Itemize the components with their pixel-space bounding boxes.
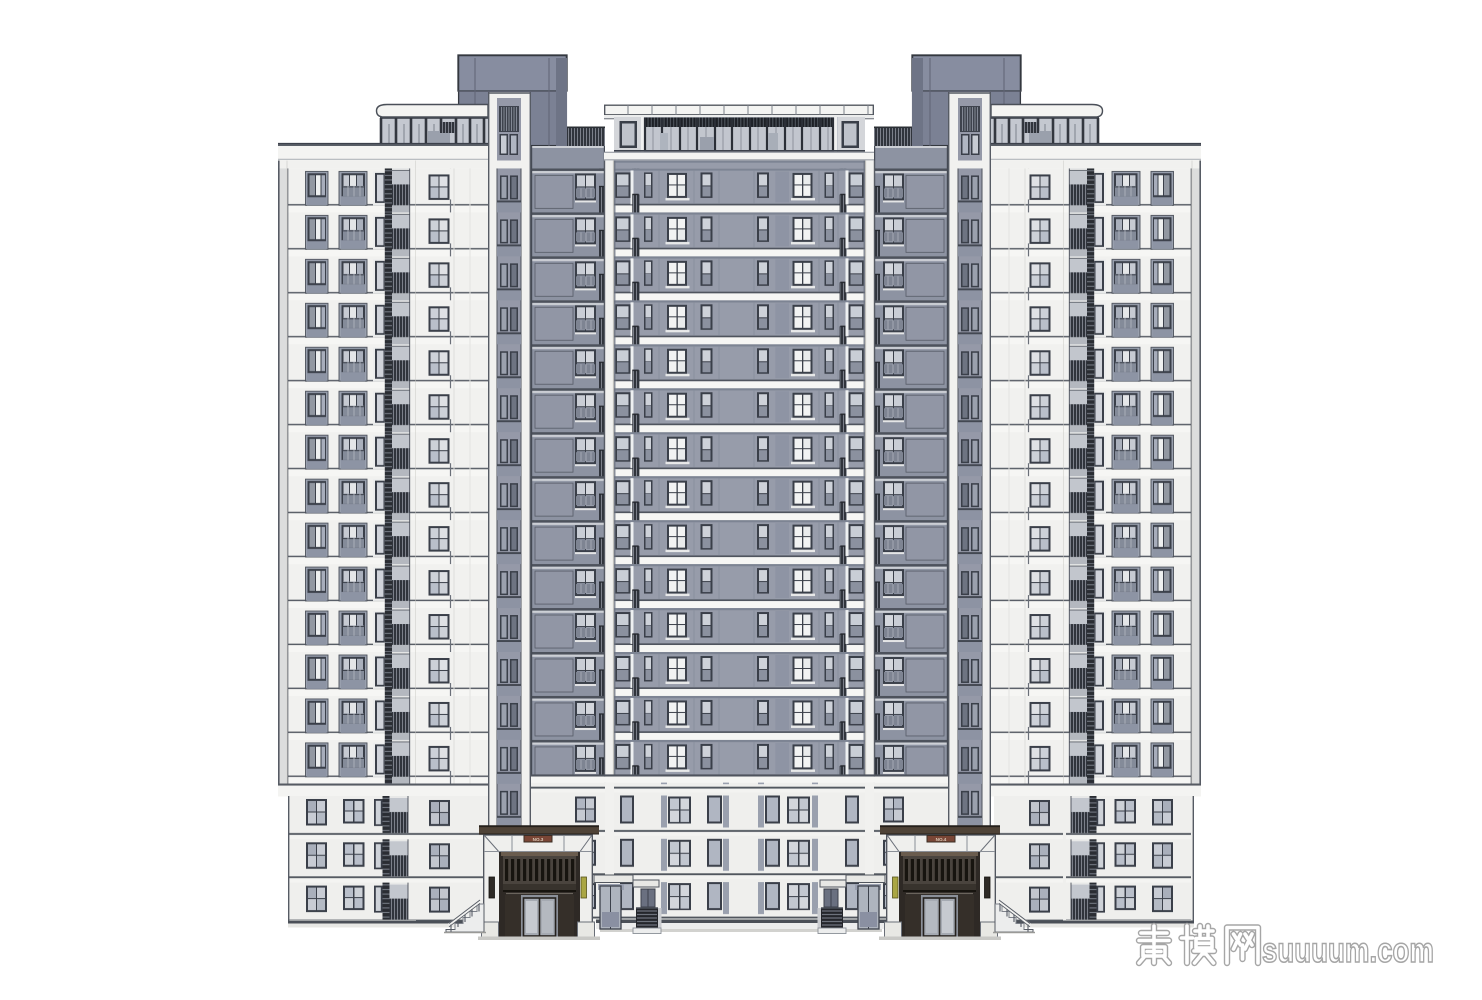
- svg-text:suuuum.com: suuuum.com: [1262, 931, 1434, 970]
- svg-text:NO.3: NO.3: [533, 837, 544, 842]
- svg-text:NO.4: NO.4: [936, 837, 947, 842]
